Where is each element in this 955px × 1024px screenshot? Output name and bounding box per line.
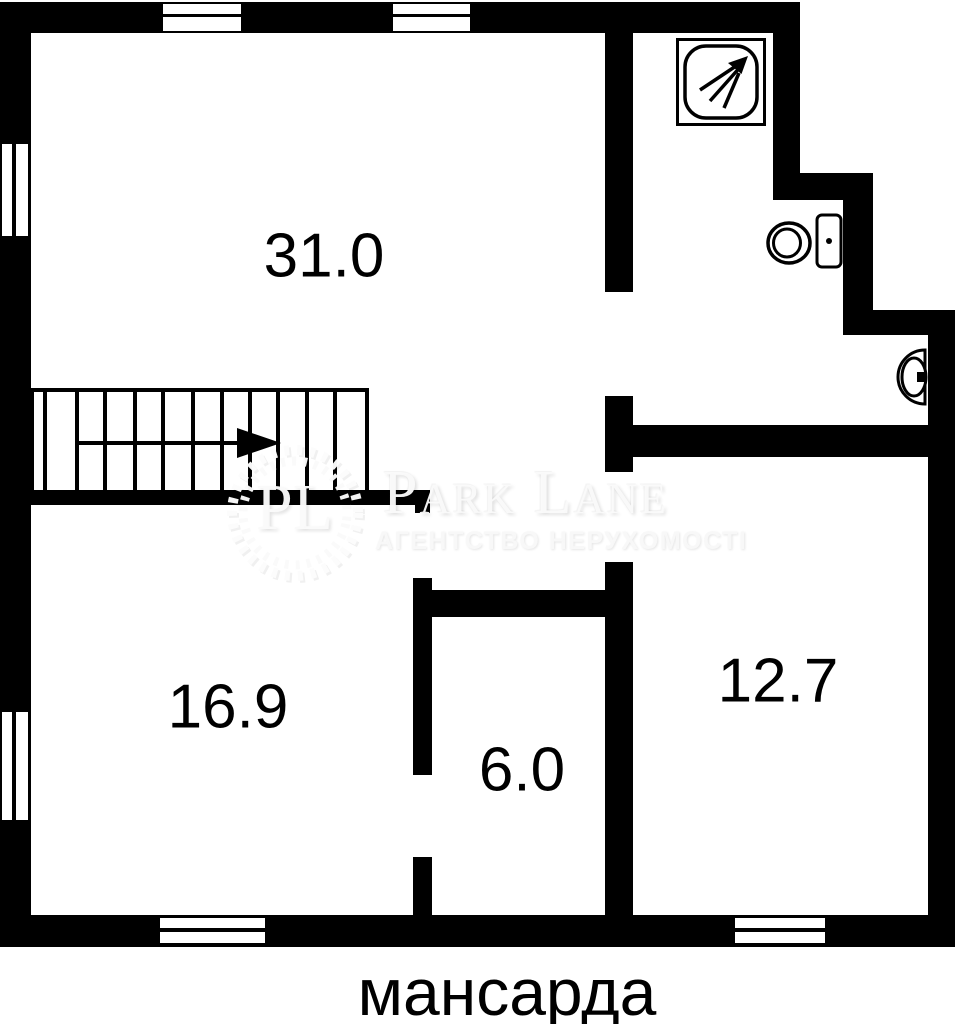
- wall-bathroom-bottom: [605, 425, 928, 457]
- wall-room6-top: [413, 590, 633, 617]
- watermark-tagline: АГЕНТСТВО НЕРУХОМОСТІ: [375, 527, 747, 556]
- wall-bathroom-left-upper: [605, 2, 633, 292]
- room-area-label-12-7: 12.7: [718, 646, 839, 717]
- window-top-1: [163, 4, 241, 31]
- window-divider: [735, 928, 825, 932]
- floor-plan: 31.0 16.9 6.0 12.7 мансарда PL Park Lane…: [0, 0, 955, 1024]
- wall-right-main: [928, 310, 955, 947]
- wall-right-upper: [773, 2, 800, 200]
- floor-title: мансарда: [358, 954, 657, 1024]
- wall-room6-left-upper: [413, 578, 432, 775]
- sink-icon: [890, 345, 930, 409]
- window-divider: [12, 712, 16, 820]
- wall-room6-left-lower: [413, 857, 432, 915]
- window-bottom-2: [735, 918, 825, 943]
- wall-under-stairs-jamb: [415, 505, 430, 513]
- window-top-2: [393, 4, 470, 31]
- shower-icon: [676, 38, 766, 126]
- window-left-2: [2, 712, 28, 820]
- window-left-1: [2, 144, 28, 236]
- window-divider: [163, 14, 241, 17]
- room-area-label-6: 6.0: [479, 735, 565, 806]
- toilet-icon: [762, 212, 847, 274]
- room-area-label-31: 31.0: [264, 221, 385, 292]
- window-divider: [393, 14, 470, 17]
- window-bottom-1: [160, 918, 265, 943]
- window-divider: [160, 928, 265, 932]
- staircase: [30, 388, 369, 494]
- window-divider: [12, 144, 16, 236]
- room-area-label-16-9: 16.9: [168, 672, 289, 743]
